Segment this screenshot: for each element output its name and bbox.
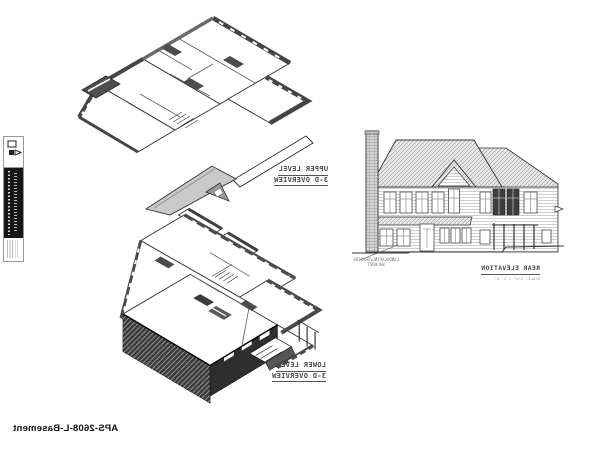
rear-elevation-scale: SCALE: 1/4" = 1'-0" [494,275,540,285]
title-block [3,136,24,262]
rear-elevation-title: REAR ELEVATION [481,264,540,275]
publisher-logo-mark-icon [4,137,23,167]
publisher-logo [4,137,23,168]
upper-plan-title: UPPER LEVEL [278,165,328,176]
drawing-sheet: UPPER LEVEL 3-D OVERVIEW LOWER LEVEL 3-D… [0,0,600,450]
plan-number-label: APS-2608-L-Basement [13,423,118,434]
upper-plan-subtitle: 3-D OVERVIEW [274,176,328,187]
elevation-annotation: LANDSCAPING/GRADING WALKOUT [352,257,400,267]
title-block-company-bar [4,168,23,238]
rear-elevation-view [352,126,564,262]
rear-elevation-label: REAR ELEVATION SCALE: 1/4" = 1'-0" [478,264,540,284]
lower-plan-subtitle: 3-D OVERVIEW [272,372,326,383]
annotation-line-2: WALKOUT [352,262,400,267]
lower-plan-title: LOWER LEVEL [276,361,326,372]
title-block-notes [4,238,23,260]
lower-plan-label: LOWER LEVEL 3-D OVERVIEW [246,361,326,382]
upper-plan-label: UPPER LEVEL 3-D OVERVIEW [256,165,328,186]
